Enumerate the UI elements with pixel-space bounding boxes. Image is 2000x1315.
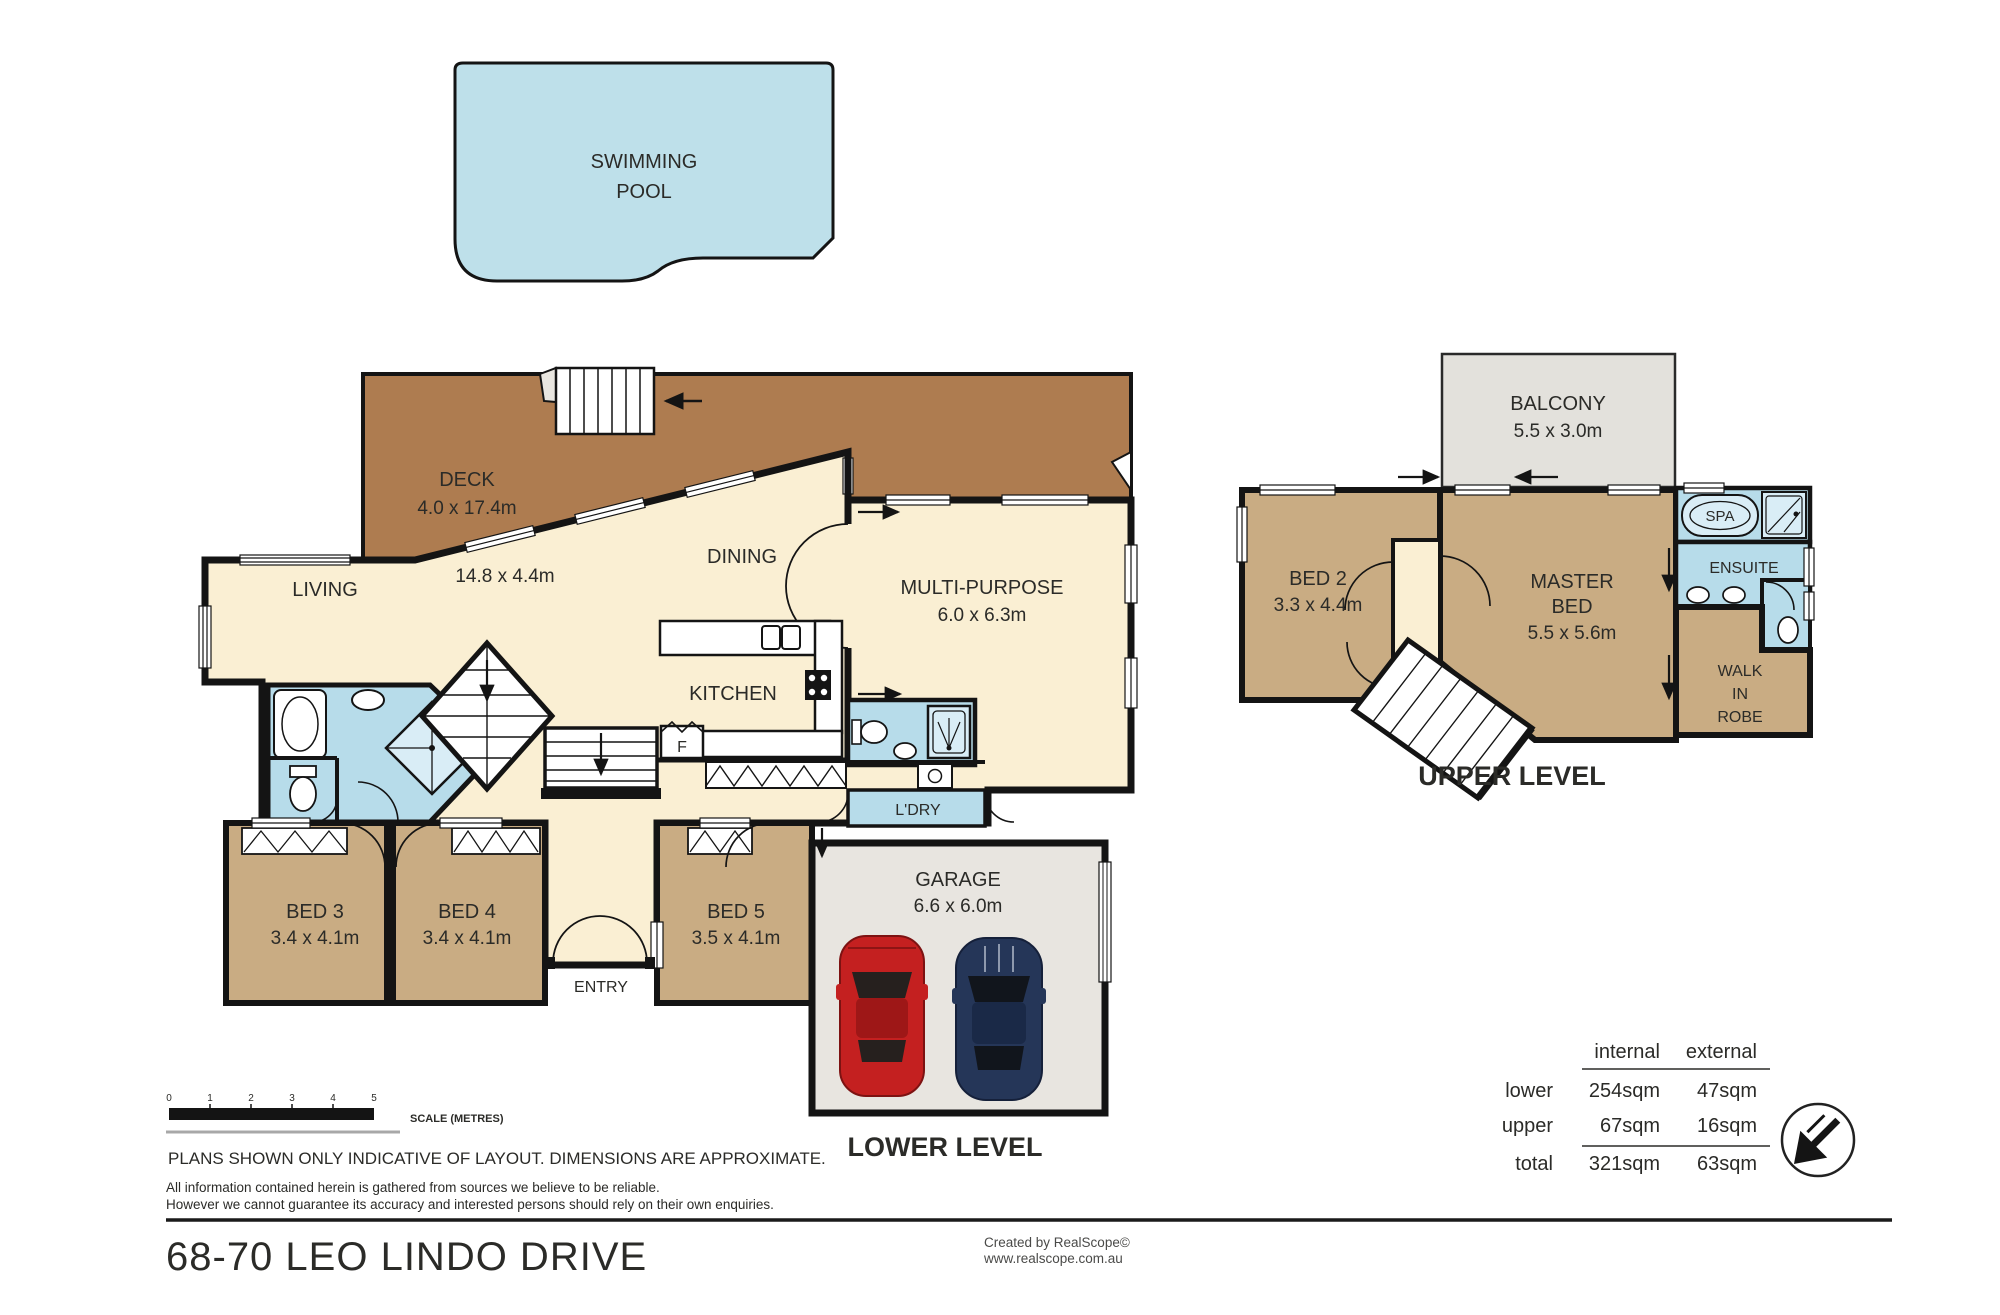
ensuite-basin-1 — [1687, 587, 1709, 603]
ensuite-basin-2 — [1723, 587, 1745, 603]
upper-level-label: UPPER LEVEL — [1418, 761, 1606, 791]
bed3-label: BED 3 — [286, 901, 344, 923]
bed5: BED 5 3.5 x 4.1m — [657, 823, 812, 1003]
bed4-dims: 3.4 x 4.1m — [423, 928, 512, 949]
bed2-dims: 3.3 x 4.4m — [1274, 595, 1363, 616]
disclaimer-line-1: PLANS SHOWN ONLY INDICATIVE OF LAYOUT. D… — [168, 1149, 826, 1168]
scale-caption: SCALE (METRES) — [410, 1113, 504, 1125]
bed4: BED 4 3.4 x 4.1m — [393, 823, 545, 1003]
shower3-icon — [1762, 492, 1806, 538]
pool-label-2: POOL — [616, 181, 672, 203]
scale-tick-5: 5 — [371, 1093, 377, 1104]
shower2-icon — [928, 706, 970, 758]
lower-internal: 254sqm — [1589, 1080, 1660, 1102]
robe-label-1: WALK — [1718, 663, 1763, 680]
property-address: 68-70 LEO LINDO DRIVE — [166, 1235, 647, 1279]
scale-tick-4: 4 — [330, 1093, 336, 1104]
credit-line-1: Created by RealScope© — [984, 1235, 1130, 1250]
garage-dims: 6.6 x 6.0m — [914, 896, 1003, 917]
scale-bar: 0 1 2 3 4 5 SCALE (METRES) — [166, 1093, 504, 1132]
multi-label: MULTI-PURPOSE — [901, 577, 1064, 599]
lower-external: 47sqm — [1697, 1080, 1757, 1102]
balcony: BALCONY 5.5 x 3.0m — [1442, 354, 1675, 487]
scale-tick-3: 3 — [289, 1093, 295, 1104]
master-label-1: MASTER — [1530, 571, 1613, 593]
upper-external: 16sqm — [1697, 1115, 1757, 1137]
sink-icon — [762, 626, 800, 649]
scale-tick-0: 0 — [166, 1093, 172, 1104]
dining-label: DINING — [707, 546, 777, 568]
bed2-label: BED 2 — [1289, 568, 1347, 590]
hall-closet-icon — [706, 762, 846, 788]
cooktop-icon — [805, 670, 831, 700]
credit-line-2: www.realscope.com.au — [983, 1251, 1123, 1266]
swimming-pool: SWIMMING POOL — [455, 63, 833, 281]
toilet-icon — [290, 766, 316, 811]
master-label-2: BED — [1551, 596, 1592, 618]
spa-room: SPA — [1676, 488, 1810, 542]
garage: GARAGE 6.6 x 6.0m — [812, 828, 1111, 1113]
living-dims: 14.8 x 4.4m — [455, 566, 554, 587]
row-label-upper: upper — [1502, 1115, 1553, 1137]
disclaimer-line-2: All information contained herein is gath… — [166, 1180, 660, 1195]
fridge-label: F — [677, 739, 687, 756]
robe-label-3: ROBE — [1717, 709, 1762, 726]
row-label-lower: lower — [1505, 1080, 1553, 1102]
row-label-total: total — [1515, 1153, 1553, 1175]
master-dims: 5.5 x 5.6m — [1528, 623, 1617, 644]
robe-label-2: IN — [1732, 686, 1748, 703]
bed5-dims: 3.5 x 4.1m — [692, 928, 781, 949]
garage-door-icon — [1099, 862, 1111, 982]
upper-internal: 67sqm — [1600, 1115, 1660, 1137]
blue-car-icon — [952, 938, 1046, 1100]
floorplan-canvas: SWIMMING POOL DECK 4.0 x 17.4m LIVING 14… — [0, 0, 2000, 1315]
bed4-label: BED 4 — [438, 901, 496, 923]
scale-tick-2: 2 — [248, 1093, 254, 1104]
lower-level-label: LOWER LEVEL — [848, 1132, 1043, 1162]
ensuite-toilet-nook — [1762, 580, 1810, 650]
garage-label: GARAGE — [915, 869, 1001, 891]
ensuite-label: ENSUITE — [1709, 560, 1778, 577]
col-header-external: external — [1686, 1041, 1757, 1063]
kitchen-bench-bottom — [700, 731, 842, 757]
entry-label: ENTRY — [574, 979, 628, 996]
bed3-dims: 3.4 x 4.1m — [271, 928, 360, 949]
bed5-label: BED 5 — [707, 901, 765, 923]
bathroom-multi — [848, 694, 975, 765]
total-internal: 321sqm — [1589, 1153, 1660, 1175]
deck-label: DECK — [439, 469, 495, 491]
spa-label: SPA — [1706, 508, 1735, 525]
fridge-icon: F — [661, 722, 703, 758]
toilet3-icon — [1778, 617, 1798, 643]
balcony-label: BALCONY — [1510, 393, 1606, 415]
laundry-label: L'DRY — [895, 802, 941, 819]
total-external: 63sqm — [1697, 1153, 1757, 1175]
scale-tick-1: 1 — [207, 1093, 213, 1104]
bed3: BED 3 3.4 x 4.1m — [226, 823, 387, 1003]
balcony-dims: 5.5 x 3.0m — [1514, 421, 1603, 442]
living-label: LIVING — [292, 579, 358, 601]
red-car-icon — [836, 936, 928, 1096]
toilet2-icon — [852, 720, 861, 744]
basin-icon — [352, 690, 384, 710]
multi-dims: 6.0 x 6.3m — [938, 605, 1027, 626]
basin2-icon — [894, 743, 916, 759]
disclaimer-line-3: However we cannot guarantee its accuracy… — [166, 1197, 774, 1212]
area-table: internal external lower 254sqm 47sqm upp… — [1502, 1041, 1770, 1175]
north-arrow-icon — [1781, 1104, 1854, 1177]
col-header-internal: internal — [1594, 1041, 1660, 1063]
kitchen-label: KITCHEN — [689, 683, 777, 705]
deck-dims: 4.0 x 17.4m — [417, 498, 516, 519]
floorplan-page: SWIMMING POOL DECK 4.0 x 17.4m LIVING 14… — [0, 0, 2000, 1315]
kitchen-island — [660, 621, 830, 655]
pool-label-1: SWIMMING — [591, 151, 698, 173]
